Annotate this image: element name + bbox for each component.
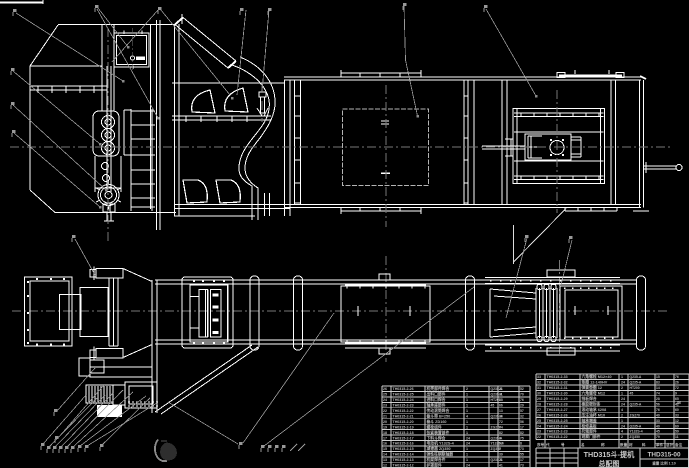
svg-text:电动机 Y132S-4: 电动机 Y132S-4 <box>427 441 455 446</box>
svg-text:1: 1 <box>466 453 468 457</box>
svg-text:14: 14 <box>383 453 387 457</box>
svg-text:TH0315-2-18: TH0315-2-18 <box>393 431 414 435</box>
svg-text:1: 1 <box>466 398 468 402</box>
svg-text:1: 1 <box>621 392 623 396</box>
svg-text:79: 79 <box>656 435 660 439</box>
svg-text:TH0315-2-16: TH0315-2-16 <box>393 442 414 446</box>
svg-text:18: 18 <box>383 431 387 435</box>
svg-text:24: 24 <box>537 424 541 428</box>
svg-text:22: 22 <box>537 435 541 439</box>
svg-text:21: 21 <box>383 414 387 418</box>
svg-text:28: 28 <box>537 402 541 406</box>
svg-text:号: 号 <box>561 442 565 447</box>
svg-text:40: 40 <box>656 424 660 428</box>
svg-text:56: 56 <box>656 402 660 406</box>
svg-text:TH0315-2-32: TH0315-2-32 <box>547 381 568 385</box>
svg-text:45: 45 <box>630 392 634 396</box>
svg-text:19: 19 <box>383 425 387 429</box>
svg-text:14: 14 <box>656 386 660 390</box>
svg-text:机架焊合件: 机架焊合件 <box>426 457 446 462</box>
svg-text:垫圈 12-140HV: 垫圈 12-140HV <box>582 380 608 385</box>
svg-text:23: 23 <box>537 430 541 434</box>
svg-text:THD315斗-提机: THD315斗-提机 <box>584 450 636 459</box>
svg-text:59: 59 <box>675 430 679 434</box>
svg-text:单件: 单件 <box>656 442 664 447</box>
svg-text:25: 25 <box>383 393 387 397</box>
svg-text:TH0315-2-27: TH0315-2-27 <box>547 408 568 412</box>
svg-text:Q235-A: Q235-A <box>630 381 642 385</box>
svg-text:六角螺栓 M12×40: 六角螺栓 M12×40 <box>582 374 612 379</box>
svg-text:总配图: 总配图 <box>599 459 620 468</box>
svg-text:TH0315-2-19: TH0315-2-19 <box>393 425 414 429</box>
svg-text:TH0315-2-31: TH0315-2-31 <box>547 386 568 390</box>
svg-text:10: 10 <box>499 414 503 418</box>
svg-text:31: 31 <box>537 386 541 390</box>
svg-text:TH0315-2-20: TH0315-2-20 <box>393 420 414 424</box>
svg-text:29: 29 <box>520 404 524 408</box>
svg-text:挡板焊合: 挡板焊合 <box>581 396 597 401</box>
svg-text:17: 17 <box>520 458 524 462</box>
svg-text:13: 13 <box>383 458 387 462</box>
svg-text:TH0315-2-14: TH0315-2-14 <box>393 453 414 457</box>
svg-text:82: 82 <box>520 431 524 435</box>
svg-text:Q235-A: Q235-A <box>491 436 503 440</box>
svg-text:传动滚筒焊合: 传动滚筒焊合 <box>426 408 450 413</box>
svg-text:25: 25 <box>537 419 541 423</box>
svg-text:ZQ350: ZQ350 <box>630 435 640 439</box>
svg-text:TH0315-2-15: TH0315-2-15 <box>393 447 414 451</box>
svg-text:TH0315-2-13: TH0315-2-13 <box>393 458 414 462</box>
svg-text:出料口部件: 出料口部件 <box>427 392 446 397</box>
svg-text:82: 82 <box>499 431 503 435</box>
svg-text:观察门部件: 观察门部件 <box>581 434 601 439</box>
svg-text:4: 4 <box>466 414 468 418</box>
svg-text:52: 52 <box>520 387 524 391</box>
svg-text:11: 11 <box>499 393 503 397</box>
svg-text:26: 26 <box>675 381 679 385</box>
svg-text:41: 41 <box>499 464 503 468</box>
svg-text:1: 1 <box>621 419 623 423</box>
svg-text:1: 1 <box>621 375 623 379</box>
svg-text:15: 15 <box>383 447 387 451</box>
svg-text:33: 33 <box>656 419 660 423</box>
svg-text:畚斗带 B=250: 畚斗带 B=250 <box>426 413 451 418</box>
svg-text:橡胶密封条: 橡胶密封条 <box>581 401 601 406</box>
svg-text:56: 56 <box>520 420 524 424</box>
svg-text:72: 72 <box>675 386 679 390</box>
svg-text:TH0315-2-28: TH0315-2-28 <box>547 402 568 406</box>
svg-text:24: 24 <box>621 402 625 406</box>
svg-text:13: 13 <box>499 409 503 413</box>
svg-text:Q235-A: Q235-A <box>630 375 642 379</box>
svg-text:2: 2 <box>621 435 623 439</box>
svg-text:21: 21 <box>499 387 503 391</box>
svg-text:名: 名 <box>581 442 585 447</box>
svg-text:ZG270: ZG270 <box>630 413 640 417</box>
svg-text:15: 15 <box>656 375 660 379</box>
svg-text:28: 28 <box>656 397 660 401</box>
svg-text:TH0315-2-23: TH0315-2-23 <box>547 430 568 434</box>
svg-text:4: 4 <box>621 408 623 412</box>
svg-text:张紧装置部件: 张紧装置部件 <box>427 430 450 435</box>
svg-text:TH0315-2-12: TH0315-2-12 <box>393 464 414 468</box>
svg-text:70: 70 <box>520 393 524 397</box>
svg-text:39: 39 <box>499 453 503 457</box>
svg-text:73: 73 <box>520 447 524 451</box>
svg-text:83: 83 <box>656 381 660 385</box>
svg-text:55: 55 <box>520 453 524 457</box>
svg-text:TH0315-2-17: TH0315-2-17 <box>393 436 414 440</box>
svg-text:57: 57 <box>520 409 524 413</box>
svg-text:TH0315-2-23: TH0315-2-23 <box>393 404 414 408</box>
svg-text:1: 1 <box>466 431 468 435</box>
svg-text:9: 9 <box>499 436 501 440</box>
svg-text:30: 30 <box>537 392 541 396</box>
svg-text:畚斗 ZD160: 畚斗 ZD160 <box>426 419 447 424</box>
svg-text:17: 17 <box>383 436 387 440</box>
svg-text:压注油杯 M10: 压注油杯 M10 <box>582 412 606 417</box>
svg-text:滚动轴承 6208: 滚动轴承 6208 <box>582 407 607 412</box>
svg-text:7: 7 <box>499 447 501 451</box>
svg-text:六角螺母 M12: 六角螺母 M12 <box>582 391 606 396</box>
svg-text:TH0315-2-25: TH0315-2-25 <box>393 393 414 397</box>
svg-text:TH0315-2-26: TH0315-2-26 <box>393 387 414 391</box>
svg-text:1: 1 <box>466 458 468 462</box>
svg-text:16: 16 <box>383 442 387 446</box>
svg-text:33: 33 <box>537 375 541 379</box>
svg-text:备注: 备注 <box>674 442 683 447</box>
svg-text:TH0315-2-24: TH0315-2-24 <box>393 398 414 402</box>
svg-text:检修盖板: 检修盖板 <box>582 423 597 428</box>
svg-text:45: 45 <box>491 404 495 408</box>
svg-text:总计: 总计 <box>666 442 674 447</box>
svg-text:72: 72 <box>499 420 503 424</box>
svg-text:HT200: HT200 <box>630 386 640 390</box>
svg-text:料: 料 <box>642 442 646 447</box>
svg-text:1: 1 <box>466 425 468 429</box>
svg-text:22: 22 <box>383 409 387 413</box>
svg-text:33: 33 <box>675 413 679 417</box>
svg-text:9: 9 <box>675 392 677 396</box>
svg-text:序号: 序号 <box>537 442 545 447</box>
svg-text:12: 12 <box>383 464 387 468</box>
svg-text:52: 52 <box>499 442 503 446</box>
svg-text:1: 1 <box>466 404 468 408</box>
svg-text:轴承座部件: 轴承座部件 <box>427 403 446 408</box>
svg-text:32: 32 <box>537 381 541 385</box>
svg-text:71: 71 <box>499 458 503 462</box>
svg-text:32: 32 <box>520 414 524 418</box>
svg-text:4: 4 <box>621 430 623 434</box>
svg-text:24: 24 <box>466 464 470 468</box>
svg-text:弹簧垫圈 12: 弹簧垫圈 12 <box>582 385 602 390</box>
svg-text:27: 27 <box>537 408 541 412</box>
svg-text:29: 29 <box>537 397 541 401</box>
svg-text:45: 45 <box>656 430 660 434</box>
svg-text:重量 比例 1:10: 重量 比例 1:10 <box>652 461 676 466</box>
svg-text:26: 26 <box>537 413 541 417</box>
svg-text:73: 73 <box>520 464 524 468</box>
svg-text:-86: -86 <box>676 401 681 405</box>
svg-text:26: 26 <box>383 387 387 391</box>
svg-text:76: 76 <box>656 408 660 412</box>
svg-text:74: 74 <box>656 392 660 396</box>
svg-text:24: 24 <box>621 381 625 385</box>
svg-text:TH0315-2-21: TH0315-2-21 <box>393 414 414 418</box>
svg-text:数量: 数量 <box>619 442 628 447</box>
svg-text:48: 48 <box>499 398 503 402</box>
svg-text:称: 称 <box>601 442 605 447</box>
svg-text:护罩部件: 护罩部件 <box>427 463 442 468</box>
svg-text:Y132S-4: Y132S-4 <box>630 430 643 434</box>
svg-text:减速器 ZQ350: 减速器 ZQ350 <box>426 446 451 451</box>
svg-text:69: 69 <box>675 424 679 428</box>
svg-text:TH0315-2-33: TH0315-2-33 <box>547 375 568 379</box>
svg-text:THD315-00: THD315-00 <box>647 452 680 459</box>
svg-text:TH0315-2-26: TH0315-2-26 <box>547 413 568 417</box>
svg-text:24: 24 <box>621 397 625 401</box>
svg-text:8: 8 <box>520 442 522 446</box>
svg-text:17: 17 <box>520 425 524 429</box>
svg-text:24: 24 <box>621 424 625 428</box>
svg-text:TH0315-2-29: TH0315-2-29 <box>547 397 568 401</box>
svg-text:进料口焊合: 进料口焊合 <box>427 397 446 402</box>
svg-text:11: 11 <box>675 435 679 439</box>
svg-text:23: 23 <box>383 404 387 408</box>
svg-text:轴承端盖: 轴承端盖 <box>582 418 597 423</box>
svg-text:76: 76 <box>675 375 679 379</box>
svg-text:1: 1 <box>466 409 468 413</box>
svg-text:弹性柱销联轴器: 弹性柱销联轴器 <box>427 452 454 457</box>
svg-text:下料斗焊合: 下料斗焊合 <box>427 435 446 440</box>
svg-text:60: 60 <box>675 408 679 412</box>
svg-text:1: 1 <box>466 447 468 451</box>
svg-text:Q235-A: Q235-A <box>630 424 642 428</box>
svg-text:代: 代 <box>545 442 550 447</box>
svg-text:机壳部件焊合: 机壳部件焊合 <box>426 386 450 391</box>
svg-text:材: 材 <box>628 442 633 447</box>
svg-text:螺栓组件: 螺栓组件 <box>427 424 442 429</box>
svg-text:12: 12 <box>675 419 679 423</box>
svg-text:2: 2 <box>621 413 623 417</box>
svg-text:1: 1 <box>466 393 468 397</box>
svg-text:TH0315-2-25: TH0315-2-25 <box>547 419 568 423</box>
svg-text:2: 2 <box>621 386 623 390</box>
svg-text:TH0315-2-24: TH0315-2-24 <box>547 424 568 428</box>
svg-text:Q235-A: Q235-A <box>630 402 642 406</box>
svg-text:76: 76 <box>520 398 524 402</box>
svg-text:TH0315-2-22: TH0315-2-22 <box>393 409 414 413</box>
svg-text:20: 20 <box>383 420 387 424</box>
svg-text:24: 24 <box>383 398 387 402</box>
svg-text:TH0315-2-30: TH0315-2-30 <box>547 392 568 396</box>
svg-text:24: 24 <box>466 436 470 440</box>
svg-text:托辊部件: 托辊部件 <box>582 429 597 434</box>
svg-text:1: 1 <box>466 420 468 424</box>
svg-text:75: 75 <box>520 436 524 440</box>
svg-text:66: 66 <box>499 404 503 408</box>
svg-text:24: 24 <box>466 442 470 446</box>
svg-text:74: 74 <box>499 425 503 429</box>
svg-text:40: 40 <box>656 413 660 417</box>
svg-text:2: 2 <box>466 387 468 391</box>
svg-text:TH0315-2-22: TH0315-2-22 <box>547 435 568 439</box>
